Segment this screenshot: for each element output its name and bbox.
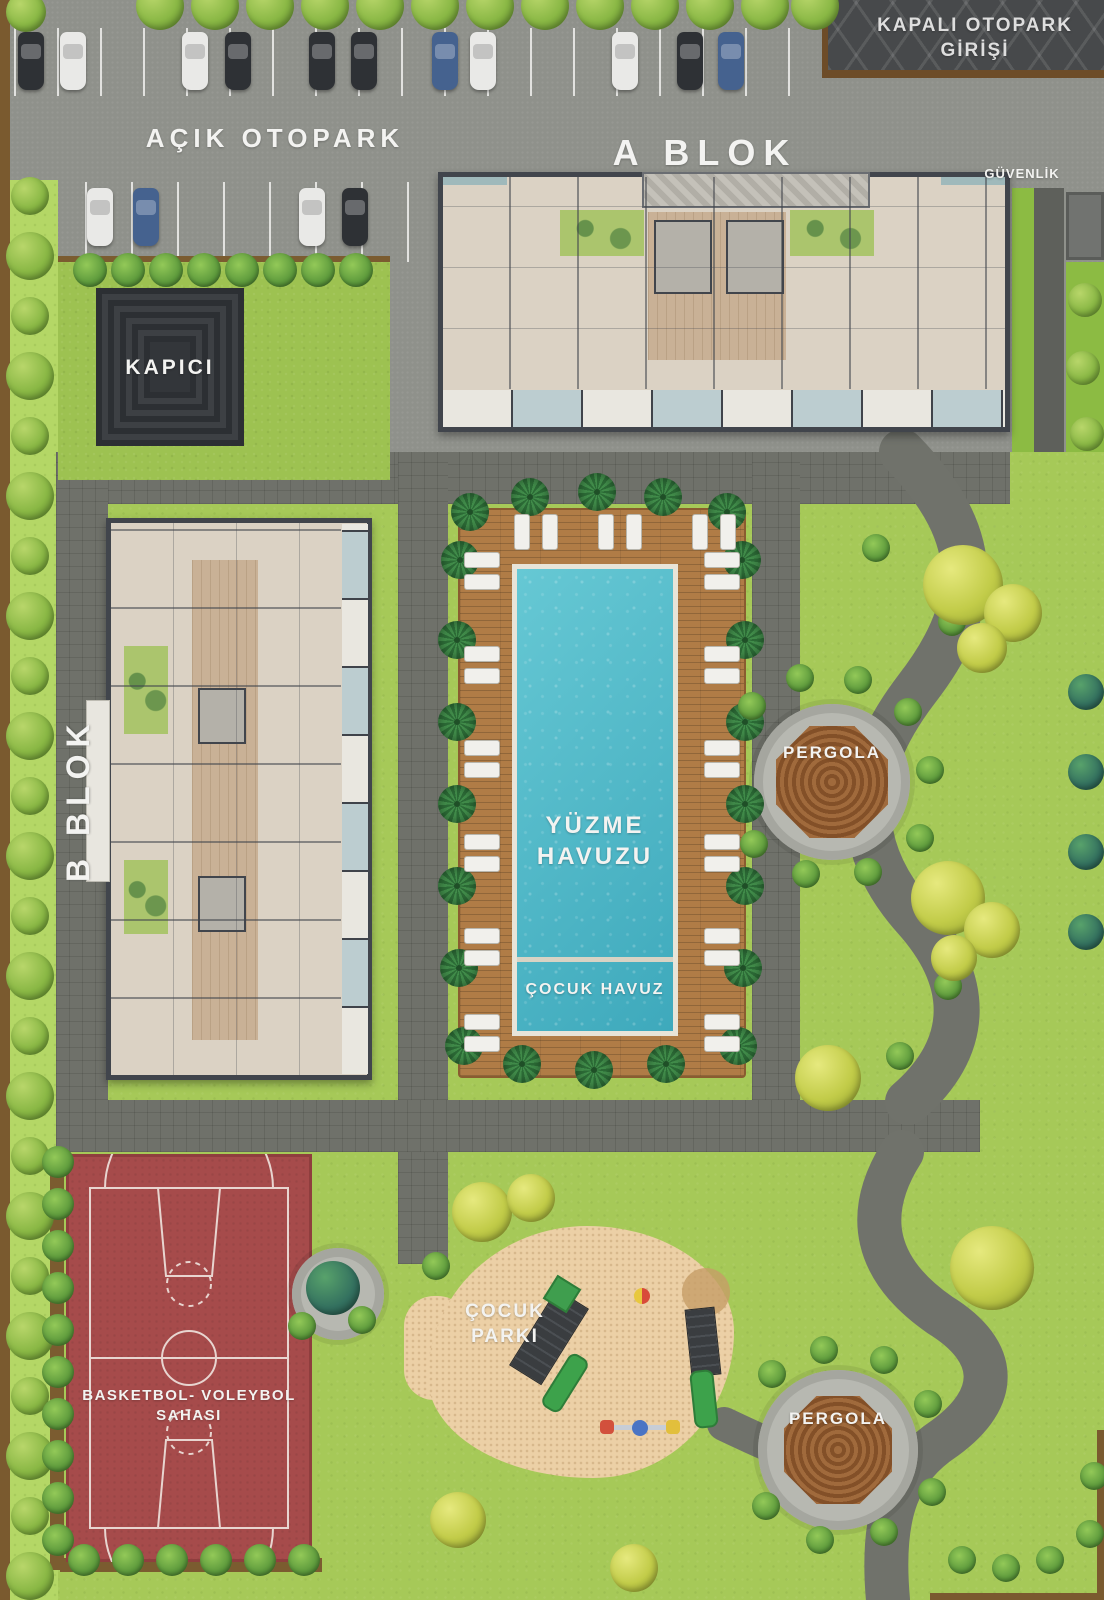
parked-car [60,32,86,90]
hedge-bush [244,1544,276,1576]
kids-pool-label: ÇOCUK HAVUZ [500,980,690,1001]
kids-park-line2: PARKI [430,1325,580,1350]
right-soil-border [1097,1430,1104,1600]
garden-bush [916,756,944,784]
hedge-bush [42,1482,74,1514]
palm-tree [438,867,476,905]
sun-lounger [464,646,500,662]
palm-tree [726,867,764,905]
mini-garden-tree [306,1261,360,1315]
hedge-bush [42,1356,74,1388]
sun-lounger [704,1014,740,1030]
sun-lounger [704,950,740,966]
garden-bush [948,1546,976,1574]
palm-tree [503,1045,541,1083]
parked-car [342,188,368,246]
block-b-balconies [342,524,368,1074]
pool-label: YÜZME HAVUZU [512,810,678,872]
palm-tree [511,478,549,516]
tree [11,537,49,575]
parked-car [133,188,159,246]
garden-bush [738,692,766,720]
tree [957,623,1007,673]
palm-tree [647,1045,685,1083]
hedge-bush [42,1146,74,1178]
sun-lounger [464,762,500,778]
sun-lounger [464,856,500,872]
sun-lounger [704,574,740,590]
swimming-pool [512,564,678,1036]
hedge-bush [73,253,107,287]
security-hedge-strip [1012,188,1034,452]
garden-bush [740,830,768,858]
parked-car [309,32,335,90]
hedge-bush [42,1440,74,1472]
seesaw-pivot [632,1420,648,1436]
toy-ball [634,1288,650,1304]
sun-lounger [464,950,500,966]
garden-bush [906,824,934,852]
tree [6,592,54,640]
tree [11,1017,49,1055]
sun-lounger [542,514,558,550]
garden-bush [844,666,872,694]
garden-bush [1076,1520,1104,1548]
garden-bush [870,1346,898,1374]
tree [6,712,54,760]
garden-bush [918,1478,946,1506]
hedge-bush [263,253,297,287]
garden-bush [894,698,922,726]
seesaw-seat-right [666,1420,680,1434]
hedge-bush [156,1544,188,1576]
sun-lounger [704,668,740,684]
garden-bush [348,1306,376,1334]
tree [6,832,54,880]
parked-car [225,32,251,90]
sun-lounger [464,928,500,944]
tree [1068,914,1104,950]
tree [6,232,54,280]
security-booth [1066,192,1104,260]
palm-tree [644,478,682,516]
garden-bush [810,1336,838,1364]
tree [11,417,49,455]
sun-lounger [464,740,500,756]
hedge-bush [339,253,373,287]
parked-car [432,32,458,90]
pergola-bottom-label: PERGOLA [760,1408,916,1430]
sun-lounger [704,834,740,850]
open-parking-label: AÇIK OTOPARK [130,122,420,156]
covered-parking-sign: KAPALI OTOPARK GİRİŞİ [860,14,1090,63]
road-playground-stub [398,1152,448,1264]
tree [1070,417,1104,451]
hedge-bush [149,253,183,287]
left-soil-border [0,0,10,1600]
sports-court-line2: SAHASI [66,1406,312,1426]
sun-lounger [692,514,708,550]
tree [950,1226,1034,1310]
covered-parking-line1: KAPALI OTOPARK [860,14,1090,39]
sun-lounger [704,740,740,756]
sun-lounger [720,514,736,550]
sports-court [66,1154,312,1562]
tree [1068,283,1102,317]
garden-bush [792,860,820,888]
garden-bush [758,1360,786,1388]
parked-car [299,188,325,246]
tree [11,897,49,935]
palm-tree [451,493,489,531]
sun-lounger [704,856,740,872]
parked-car [182,32,208,90]
block-a-room-grid [443,177,1005,389]
palm-tree [578,473,616,511]
kids-pool-divider [517,957,673,962]
sun-lounger [704,646,740,662]
hedge-bush [187,253,221,287]
kids-park-line1: ÇOCUK [430,1300,580,1325]
sun-lounger [704,1036,740,1052]
sun-lounger [464,574,500,590]
parked-car [677,32,703,90]
tree [507,1174,555,1222]
palm-tree [438,785,476,823]
tree [11,177,49,215]
tree [1068,834,1104,870]
parked-car [470,32,496,90]
sun-lounger [464,1036,500,1052]
tree [430,1492,486,1548]
garden-bush [1080,1462,1104,1490]
hedge-bush [42,1230,74,1262]
palm-tree [575,1051,613,1089]
court-markings [66,1154,312,1562]
parked-car [718,32,744,90]
garden-bush [886,1042,914,1070]
pool-label-line1: YÜZME [512,810,678,841]
block-a-balconies [443,390,1005,427]
palm-tree [726,785,764,823]
sun-lounger [464,668,500,684]
hedge-bush [42,1314,74,1346]
sun-lounger [704,552,740,568]
garden-bush [288,1312,316,1340]
sun-lounger [464,552,500,568]
tree [1068,754,1104,790]
parked-car [87,188,113,246]
tree [931,935,977,981]
parked-car [351,32,377,90]
sun-lounger [464,1014,500,1030]
hedge-bush [225,253,259,287]
block-b-title: B BLOK [58,690,100,910]
hedge-bush [112,1544,144,1576]
garden-bush [870,1518,898,1546]
sun-lounger [704,762,740,778]
bottom-soil-border [930,1593,1104,1600]
block-b-room-grid [111,523,341,1075]
tree [11,297,49,335]
sun-lounger [598,514,614,550]
seesaw-seat-left [600,1420,614,1434]
security-label: GÜVENLİK [957,166,1087,183]
tree [6,1072,54,1120]
garden-bush [422,1252,450,1280]
garden-bush [914,1390,942,1418]
tree [6,472,54,520]
caretaker-label: KAPICI [96,354,244,381]
sun-lounger [464,834,500,850]
pool-label-line2: HAVUZU [512,841,678,872]
block-a-title: A BLOK [570,130,840,177]
sun-lounger [626,514,642,550]
tree [795,1045,861,1111]
parked-car [612,32,638,90]
garden-bush [1036,1546,1064,1574]
tree [11,657,49,695]
tree [610,1544,658,1592]
residential-site-plan: KAPALI OTOPARK GİRİŞİ AÇIK OTOPARK GÜVEN… [0,0,1104,1600]
tree [11,777,49,815]
sports-court-line1: BASKETBOL- VOLEYBOL [66,1386,312,1406]
hedge-bush [42,1188,74,1220]
tree [1066,351,1100,385]
hedge-bush [301,253,335,287]
garden-bush [862,534,890,562]
sun-lounger [704,928,740,944]
garden-bush [992,1554,1020,1582]
tree [6,352,54,400]
palm-tree [438,703,476,741]
garden-bush [752,1492,780,1520]
security-side-path [1034,188,1064,452]
garden-bush [786,664,814,692]
hedge-bush [68,1544,100,1576]
tree [1068,674,1104,710]
sun-lounger [514,514,530,550]
covered-parking-line2: GİRİŞİ [860,39,1090,64]
pergola-top-label: PERGOLA [762,742,902,764]
hedge-bush [200,1544,232,1576]
kids-park-label: ÇOCUK PARKI [430,1300,580,1349]
hedge-bush [42,1272,74,1304]
garden-bush [806,1526,834,1554]
tree [6,952,54,1000]
hedge-bush [111,253,145,287]
tree [6,1552,54,1600]
tree [452,1182,512,1242]
hedge-bush [288,1544,320,1576]
parked-car [18,32,44,90]
sports-court-label: BASKETBOL- VOLEYBOL SAHASI [66,1386,312,1425]
garden-bush [854,858,882,886]
